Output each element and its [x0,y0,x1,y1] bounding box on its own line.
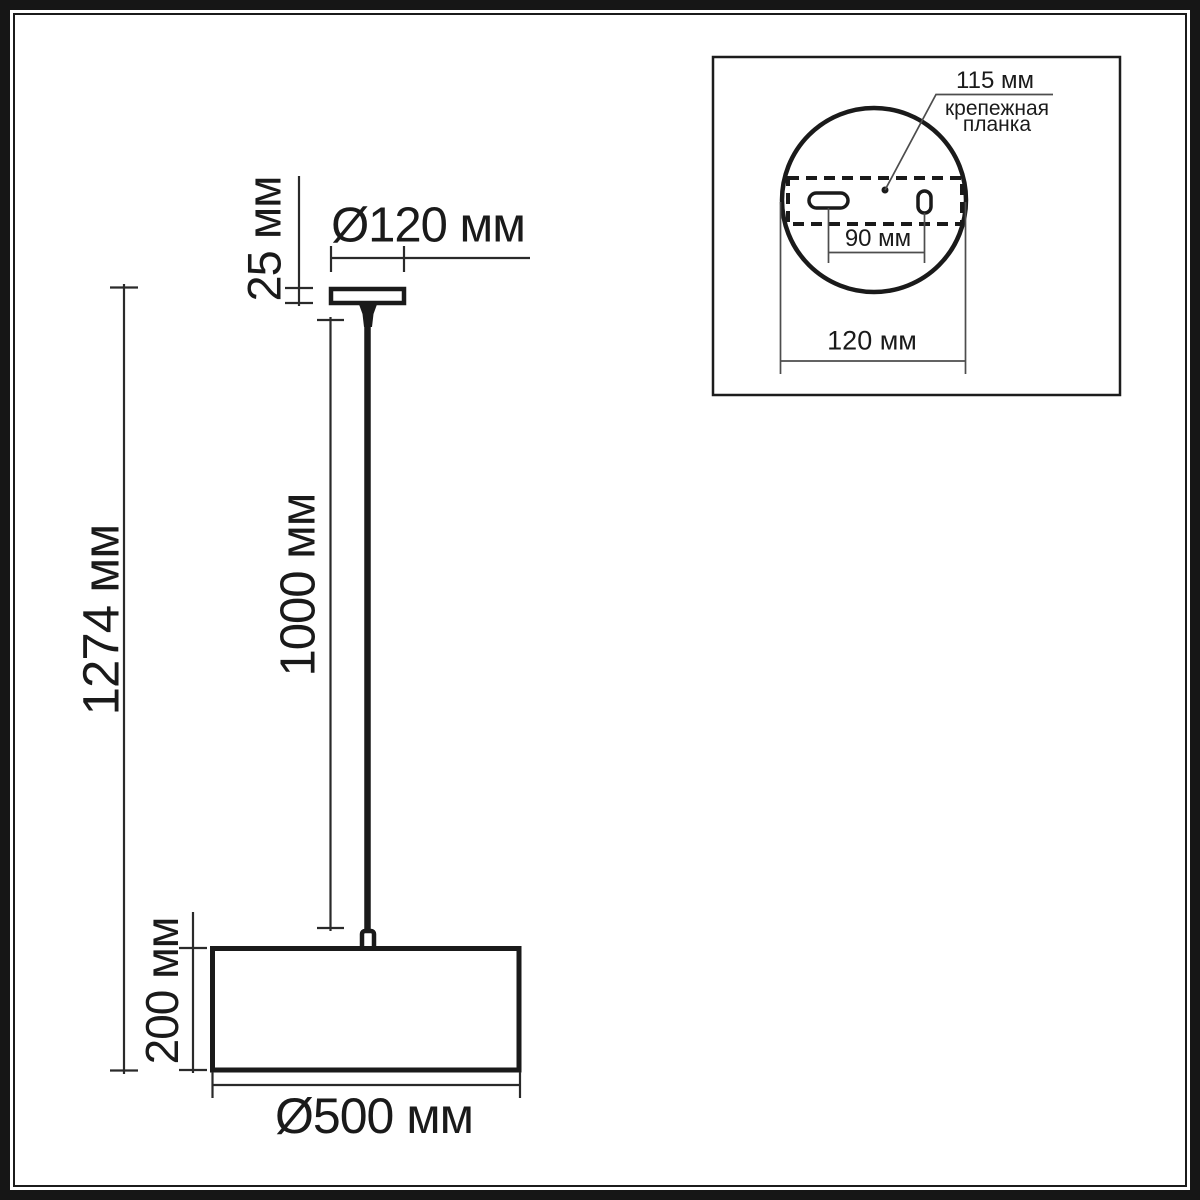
label-total-height: 1274 мм [76,525,127,716]
label-mounting-plate: крепежная планка [945,101,1049,133]
slot-hole-left [809,193,848,208]
lamp-silhouette [213,289,520,1070]
label-shade-diameter: Ø500 мм [275,1091,473,1141]
label-canopy-diameter: Ø120 мм [331,202,525,251]
screw-hole-right [918,191,931,213]
lamp-dimension-sheet: 1274 мм 25 мм Ø120 мм 1000 мм 200 мм Ø50… [0,0,1200,1200]
canopy-rect [331,289,404,303]
label-hole-spacing: 90 мм [845,227,911,251]
label-canopy-height: 25 мм [241,177,288,302]
label-base-diameter: 120 мм [827,328,917,355]
label-shade-height: 200 мм [139,918,185,1065]
label-plate-length: 115 мм [956,69,1034,93]
shade-rect [213,949,520,1071]
label-cord-length: 1000 мм [275,494,324,677]
